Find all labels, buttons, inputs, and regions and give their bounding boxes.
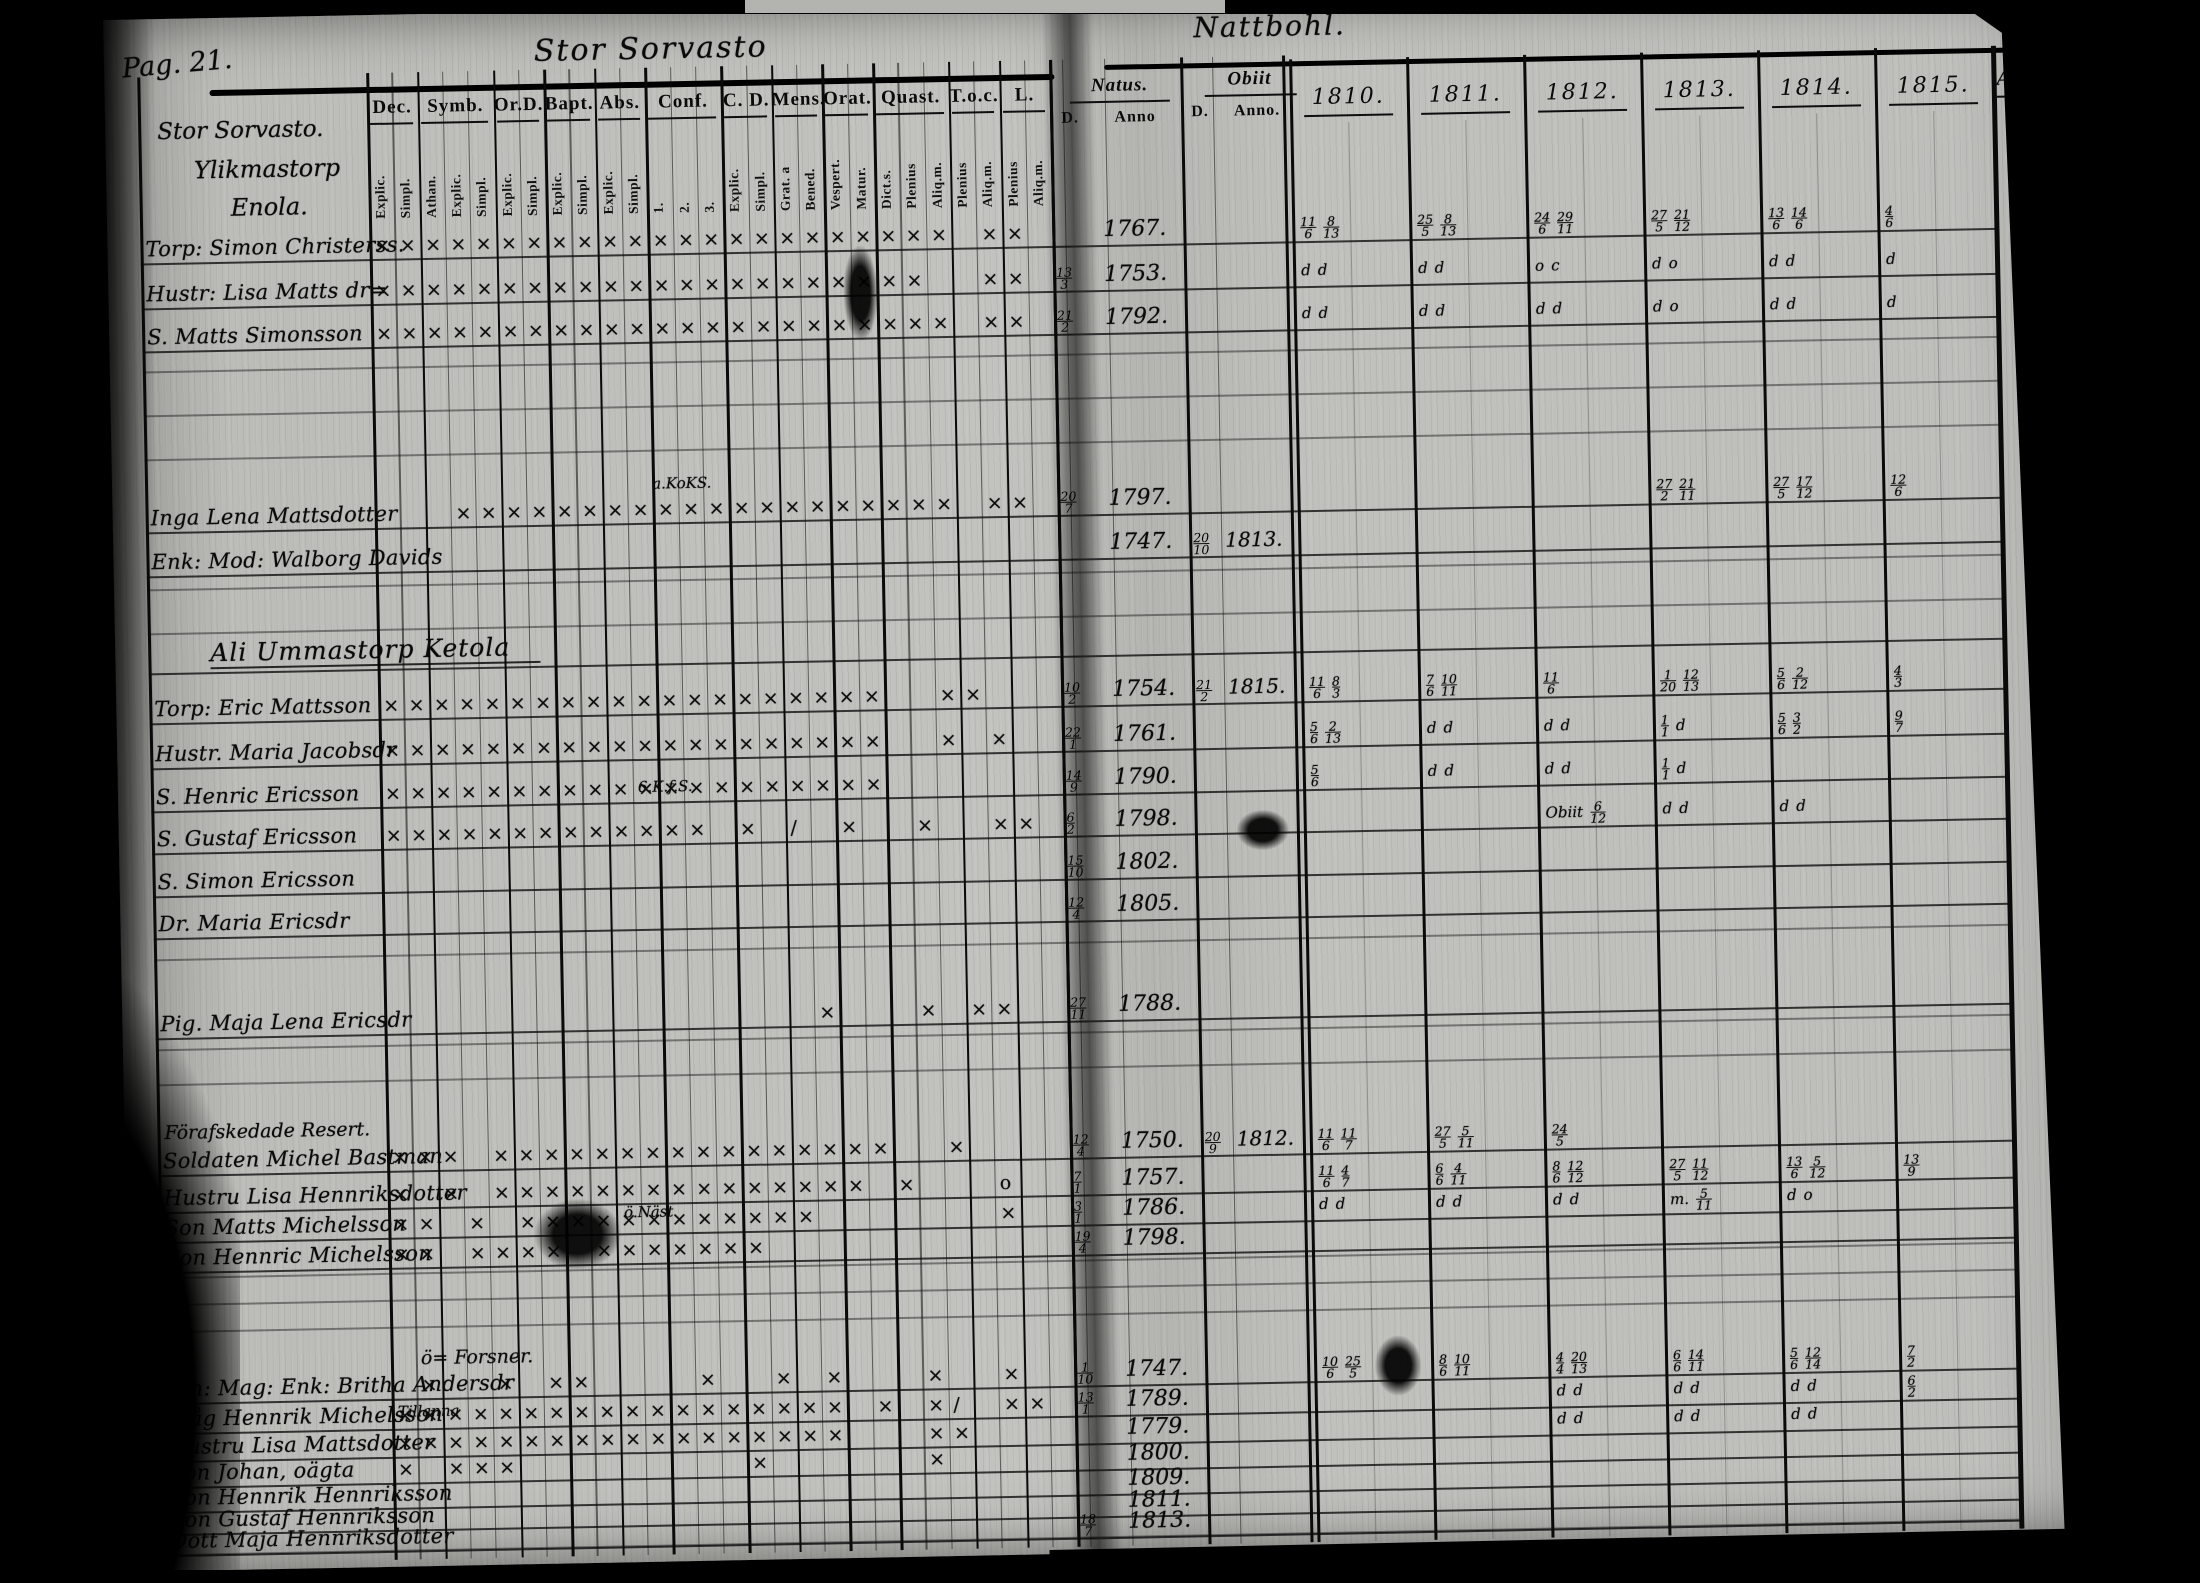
attendance-mark: ×	[443, 1183, 459, 1205]
attendance-mark: ×	[553, 319, 569, 341]
date-fraction: 1411	[1688, 1349, 1704, 1372]
year-cell: dd	[1536, 298, 1643, 318]
attendance-mark: ×	[502, 320, 518, 342]
year-cell: 136512	[1786, 1154, 1893, 1179]
attendance-mark: ×	[498, 1431, 514, 1453]
year-cell: dd	[1674, 1405, 1781, 1425]
attendance-mark: ×	[460, 738, 476, 760]
attendance-mark: ×	[486, 781, 502, 803]
year-cell: 442013	[1556, 1349, 1663, 1374]
column-subheader: Vespert.	[827, 122, 845, 210]
ditto-mark: d	[1419, 302, 1429, 320]
ditto-mark: d	[1787, 1186, 1797, 1204]
ditto-mark: d	[1560, 716, 1570, 734]
natus-year: 1802.	[1115, 849, 1178, 875]
attendance-mark: ×	[776, 1367, 792, 1389]
date-fraction: 56	[1778, 712, 1786, 735]
year-header-underline	[1304, 113, 1393, 117]
attendance-mark: ×	[751, 1398, 767, 1420]
attendance-mark: ×	[549, 1402, 565, 1424]
attendance-mark: ×	[549, 1430, 565, 1452]
attendance-mark: ×	[801, 1397, 817, 1419]
date-fraction: 245	[1552, 1123, 1568, 1146]
year-cell: dd	[1769, 250, 1876, 270]
year-cell: dd	[1790, 1375, 1897, 1395]
date-fraction: 11	[1662, 757, 1670, 780]
attendance-mark: ×	[728, 228, 744, 250]
attendance-mark: ×	[928, 1422, 944, 1444]
attendance-mark: ×	[1018, 812, 1034, 834]
attendance-mark: o	[1000, 1172, 1012, 1194]
attendance-mark: ×	[535, 692, 551, 714]
attendance-mark: ×	[948, 1136, 964, 1158]
row-name: Inga Lena Mattsdotter	[150, 502, 378, 530]
date-fraction: 72	[1907, 1345, 1915, 1368]
attendance-mark: ×	[499, 1457, 515, 1479]
attendance-mark: ×	[411, 824, 427, 846]
attendance-mark: ×	[860, 494, 876, 516]
ditto-mark: d	[1302, 304, 1312, 322]
year-cell: 11683	[1309, 674, 1416, 699]
column-subheader: Aliq.m.	[928, 120, 946, 208]
attendance-mark: ×	[797, 1176, 813, 1198]
ditto-mark: d	[1786, 295, 1796, 313]
attendance-mark: ×	[704, 273, 720, 295]
column-subheader: Plenius	[1004, 119, 1022, 207]
attendance-mark: ×	[680, 317, 696, 339]
attendance-mark: ×	[784, 496, 800, 518]
attendance-mark: ×	[435, 739, 451, 761]
year-cell: 62	[1907, 1373, 2014, 1398]
attendance-mark: ×	[452, 321, 468, 343]
column-subheader: Matur.	[852, 121, 870, 209]
attendance-mark: ×	[563, 821, 579, 843]
attendance-mark: ×	[940, 684, 956, 706]
attendance-mark: ×	[882, 313, 898, 335]
attendance-mark: ×	[461, 781, 477, 803]
attendance-mark: ×	[528, 320, 544, 342]
column-subheader: Simpl.	[397, 130, 415, 218]
column-subheader: Plenius	[902, 121, 920, 209]
year-cell: 116117	[1318, 1126, 1425, 1151]
attendance-mark: ×	[451, 278, 467, 300]
attendance-mark: ×	[755, 315, 771, 337]
attendance-mark: ×	[880, 225, 896, 247]
attendance-mark: ×	[481, 502, 497, 524]
attendance-mark: ×	[826, 1366, 842, 1388]
year-cell: 56213	[1310, 719, 1417, 744]
year-cell: 46	[1885, 203, 1992, 228]
attendance-mark: ×	[603, 275, 619, 297]
ditto-mark: d	[1552, 299, 1562, 317]
attendance-mark: ×	[548, 1372, 564, 1394]
attendance-mark: ×	[696, 1178, 712, 1200]
natus-year: 1800.	[1127, 1440, 1190, 1466]
attendance-mark: ×	[929, 1448, 945, 1470]
year-cell: d	[1886, 248, 1993, 268]
ink-blob	[1236, 810, 1289, 851]
date-fraction: 126	[1890, 474, 1906, 497]
attendance-mark: ×	[928, 1394, 944, 1416]
attendance-mark: ×	[536, 737, 552, 759]
attendance-mark: ×	[982, 268, 998, 290]
attendance-mark: ×	[560, 691, 576, 713]
attendance-mark: ×	[911, 493, 927, 515]
column-header-9: Quast.	[873, 86, 949, 109]
attendance-mark: ×	[418, 1213, 434, 1235]
attendance-mark: ×	[397, 1432, 413, 1454]
year-cell: 1201213	[1660, 667, 1767, 692]
column-subheader: Explic.	[447, 129, 465, 217]
column-subheader: Simpl.	[472, 129, 490, 217]
attendance-mark: ∕	[790, 817, 797, 839]
attendance-mark: ×	[981, 223, 997, 245]
attendance-mark: ×	[713, 733, 729, 755]
attendance-mark: ×	[739, 776, 755, 798]
date-fraction: 139	[1903, 1153, 1919, 1176]
attendance-mark: ×	[920, 999, 936, 1021]
attendance-mark: ×	[374, 235, 390, 257]
row-annotation: Tillanna	[398, 1402, 460, 1421]
attendance-mark: ×	[629, 318, 645, 340]
attendance-mark: ×	[600, 1429, 616, 1451]
attendance-mark: ×	[607, 499, 623, 521]
attendance-mark: ×	[510, 737, 526, 759]
date-fraction: 11	[1661, 714, 1669, 737]
year-cell: 97	[1895, 708, 2002, 733]
ditto-mark: d	[1435, 258, 1445, 276]
year-cell: 11647	[1318, 1163, 1425, 1188]
attendance-mark: ×	[773, 1206, 789, 1228]
natus-year: 1813.	[1128, 1508, 1191, 1534]
natus-year: 1797.	[1108, 485, 1171, 511]
date-fraction: 246	[1534, 211, 1550, 234]
year-col-vline	[1640, 53, 1671, 1536]
column-subheader: Bened.	[801, 122, 819, 210]
attendance-mark: ×	[1029, 1392, 1045, 1414]
date-fraction: 47	[1341, 1164, 1349, 1187]
year-cell: dd	[1418, 257, 1525, 277]
attendance-mark: ×	[385, 783, 401, 805]
attendance-mark: ×	[612, 735, 628, 757]
natus-year: 1754.	[1112, 676, 1175, 702]
attendance-mark: ×	[613, 820, 629, 842]
ink-blob	[843, 245, 879, 341]
date-fraction: 2112	[1674, 209, 1690, 232]
ditto-mark: d	[1691, 1407, 1701, 1425]
attendance-mark: ×	[991, 728, 1007, 750]
year-cell: 11d	[1662, 755, 1769, 780]
date-fraction: 411	[1450, 1162, 1466, 1185]
year-cell: 126	[1890, 472, 1997, 497]
date-fraction: 612	[1590, 800, 1606, 823]
ditto-mark: c	[1551, 256, 1560, 274]
attendance-mark: ×	[678, 229, 694, 251]
attendance-mark: ×	[512, 822, 528, 844]
attendance-mark: ×	[776, 1397, 792, 1419]
attendance-mark: ×	[577, 276, 593, 298]
film-shadow-bottom-left	[0, 980, 240, 1583]
attendance-mark: ×	[676, 1427, 692, 1449]
date-fraction: 275	[1651, 209, 1667, 232]
attendance-mark: ×	[780, 272, 796, 294]
attendance-mark: ×	[531, 501, 547, 523]
margin-place-name: Ylikmastorp	[194, 154, 341, 185]
row-annotation: 6.K.f.S.	[638, 777, 693, 796]
date-fraction: 1214	[1805, 1346, 1821, 1369]
attendance-mark: ×	[931, 224, 947, 246]
date-fraction: 66	[1673, 1349, 1681, 1372]
attendance-mark: ×	[748, 1237, 764, 1259]
attendance-mark: ×	[734, 497, 750, 519]
year-cell: Obiit612	[1545, 800, 1652, 825]
attendance-mark: ×	[708, 497, 724, 519]
attendance-mark: ×	[620, 1179, 636, 1201]
year-cell: 116813	[1300, 214, 1407, 239]
date-fraction: 1213	[1683, 669, 1699, 692]
ditto-mark: d	[1785, 252, 1795, 270]
attendance-mark: ×	[398, 1458, 414, 1480]
attendance-mark: ×	[612, 778, 628, 800]
attendance-mark: ×	[987, 492, 1003, 514]
ditto-mark: d	[1769, 252, 1779, 270]
date-fraction: 97	[1895, 710, 1903, 733]
attendance-mark: ×	[927, 1364, 943, 1386]
row-name: Hustr. Maria Jacobsdr	[155, 738, 383, 766]
ditto-mark: d	[1574, 1409, 1584, 1427]
attendance-mark: ×	[722, 1207, 738, 1229]
column-subheader: Explic.	[548, 127, 566, 215]
attendance-mark: ×	[650, 1428, 666, 1450]
attendance-mark: ×	[574, 1401, 590, 1423]
attendance-mark: ×	[473, 1431, 489, 1453]
date-fraction: 44	[1556, 1351, 1564, 1374]
attendance-mark: ×	[827, 1424, 843, 1446]
attendance-mark: ×	[1000, 1202, 1016, 1224]
ditto-mark: d	[1569, 1190, 1579, 1208]
year-cell: oc	[1535, 255, 1642, 275]
column-subheader: Explic.	[599, 126, 617, 214]
ditto-mark: m.	[1670, 1189, 1689, 1207]
column-header-underline	[876, 112, 944, 115]
attendance-mark: ×	[813, 686, 829, 708]
attendance-mark: ×	[1004, 1393, 1020, 1415]
column-subheader: Explic.	[725, 124, 743, 212]
ditto-mark: d	[1545, 759, 1555, 777]
row-name: S. Gustaf Ericsson	[157, 823, 385, 851]
attendance-mark: ×	[865, 730, 881, 752]
attendance-mark: ×	[701, 1427, 717, 1449]
ditto-mark: d	[1887, 293, 1897, 311]
attendance-mark: ×	[1007, 223, 1023, 245]
date-fraction: 255	[1345, 1355, 1361, 1378]
natus-year: 1753.	[1104, 261, 1167, 287]
attendance-mark: ×	[815, 774, 831, 796]
attendance-mark: ×	[393, 1213, 409, 1235]
attendance-mark: ×	[470, 1242, 486, 1264]
date-fraction: 212	[1792, 667, 1808, 690]
attendance-mark: ×	[790, 775, 806, 797]
attendance-mark: ×	[771, 1139, 787, 1161]
attendance-mark: ×	[476, 278, 492, 300]
attendance-mark: ×	[746, 1140, 762, 1162]
attendance-mark: ×	[841, 816, 857, 838]
attendance-mark: ×	[695, 1141, 711, 1163]
column-subheader: Simpl.	[624, 126, 642, 214]
year-cell: dd	[1779, 795, 1886, 815]
attendance-mark: ×	[561, 736, 577, 758]
attendance-mark: ×	[907, 312, 923, 334]
date-fraction: 275	[1669, 1158, 1685, 1181]
natus-year: 1792.	[1105, 304, 1168, 330]
year-cell: 56	[1311, 762, 1418, 787]
ditto-mark: d	[1319, 1195, 1329, 1213]
attendance-mark: ×	[448, 1431, 464, 1453]
attendance-mark: ×	[877, 1395, 893, 1417]
attendance-mark: ×	[672, 1238, 688, 1260]
ditto-mark: d	[1677, 758, 1687, 776]
ditto-mark: d	[1553, 1190, 1563, 1208]
attendance-mark: ×	[872, 1137, 888, 1159]
attendance-mark: ×	[965, 683, 981, 705]
attendance-mark: ×	[697, 1238, 713, 1260]
year-cell: dd	[1770, 293, 1877, 313]
ledger-spread: Pag. 21. Stor Sorvasto Nattbohl. Stor So…	[103, 0, 2122, 1572]
column-header-1: Symb.	[417, 95, 493, 118]
date-fraction: 1712	[1796, 475, 1812, 498]
attendance-mark: ×	[518, 1144, 534, 1166]
attendance-mark: ×	[664, 819, 680, 841]
attendance-mark: ×	[408, 694, 424, 716]
attendance-mark: ×	[599, 1401, 615, 1423]
attendance-mark: ×	[917, 814, 933, 836]
ditto-mark: d	[1444, 761, 1454, 779]
attendance-mark: ×	[400, 234, 416, 256]
attendance-mark: ×	[527, 277, 543, 299]
attendance-mark: ×	[714, 776, 730, 798]
column-subheader: Simpl.	[523, 128, 541, 216]
attendance-mark: ×	[759, 496, 775, 518]
date-fraction: 813	[1440, 213, 1456, 236]
attendance-mark: ×	[450, 233, 466, 255]
date-fraction: 76	[1426, 674, 1434, 697]
ditto-mark: o	[1535, 257, 1544, 275]
attendance-mark: ×	[632, 499, 648, 521]
attendance-mark: ×	[455, 502, 471, 524]
year-cell: do	[1787, 1184, 1894, 1204]
attendance-mark: ×	[781, 315, 797, 337]
date-fraction: 512	[1809, 1155, 1825, 1178]
attendance-mark: ×	[839, 731, 855, 753]
attendance-mark: ×	[621, 1239, 637, 1261]
obiit-year: 1815.	[1228, 674, 1286, 699]
attendance-mark: ×	[789, 732, 805, 754]
column-subheader: Athan.	[422, 130, 440, 218]
year-col-vline	[1523, 55, 1554, 1538]
column-subheader: 3.	[700, 124, 718, 212]
attendance-mark: ×	[459, 693, 475, 715]
attendance-mark: ×	[448, 1457, 464, 1479]
natus-year: 1805.	[1116, 891, 1179, 917]
date-fraction: 1011	[1441, 673, 1457, 696]
column-header-underline	[421, 121, 489, 124]
attendance-mark: ×	[730, 316, 746, 338]
attendance-mark: ×	[435, 782, 451, 804]
attendance-mark: ×	[427, 322, 443, 344]
year-header-1812: 1812.	[1524, 79, 1641, 106]
attendance-mark: ×	[675, 1399, 691, 1421]
attendance-mark: ×	[473, 1403, 489, 1425]
year-cell: 66411	[1435, 1161, 1542, 1186]
row-annotation: ö.Näst	[624, 1202, 674, 1221]
ditto-mark: o	[1669, 297, 1678, 315]
year-header-1813: 1813.	[1641, 76, 1758, 103]
attendance-mark: ×	[671, 1208, 687, 1230]
attendance-mark: ×	[993, 813, 1009, 835]
attendance-mark: ×	[410, 782, 426, 804]
attendance-mark: ×	[729, 273, 745, 295]
attendance-mark: ×	[971, 998, 987, 1020]
attendance-mark: ×	[827, 1396, 843, 1418]
attendance-mark: ×	[726, 1426, 742, 1448]
ditto-mark: d	[1318, 304, 1328, 322]
attendance-mark: ×	[637, 735, 653, 757]
attendance-mark: ×	[625, 1428, 641, 1450]
column-header-underline	[598, 118, 641, 121]
ditto-mark: d	[1573, 1381, 1583, 1399]
date-fraction: 1112	[1692, 1158, 1708, 1181]
year-cell: 245	[1552, 1121, 1659, 1146]
attendance-mark: ×	[755, 272, 771, 294]
year-col-vline	[1406, 57, 1437, 1540]
attendance-mark: ×	[864, 685, 880, 707]
attendance-mark: ×	[628, 275, 644, 297]
attendance-mark: ×	[740, 818, 756, 840]
date-fraction: 116	[1309, 676, 1325, 699]
attendance-mark: ×	[881, 270, 897, 292]
attendance-mark: ×	[506, 501, 522, 523]
natus-year: 1747.	[1125, 1356, 1188, 1382]
attendance-mark: ×	[855, 225, 871, 247]
attendance-mark: ×	[578, 319, 594, 341]
column-subheader: Grat. a	[776, 123, 794, 211]
attendance-mark: ×	[573, 1371, 589, 1393]
attendance-mark: ×	[624, 1400, 640, 1422]
year-col-vline	[1289, 59, 1320, 1542]
attendance-mark: ×	[763, 687, 779, 709]
date-fraction: 46	[1885, 205, 1893, 228]
year-cell: 139	[1903, 1152, 2010, 1177]
year-header-underline	[1655, 107, 1744, 111]
attendance-mark: ×	[689, 819, 705, 841]
natus-year: 1786.	[1122, 1195, 1185, 1221]
attendance-mark: ×	[683, 498, 699, 520]
attendance-mark: ×	[823, 1175, 839, 1197]
year-cell: 56212	[1777, 665, 1884, 690]
natus-year: 1767.	[1103, 216, 1166, 242]
ditto-mark: d	[1807, 1376, 1817, 1394]
date-fraction: 2911	[1557, 211, 1573, 234]
row-name: Dr. Maria Ericsdr	[158, 908, 386, 936]
year-cell: dd	[1319, 1193, 1426, 1213]
natus-year: 1789.	[1126, 1386, 1189, 1412]
attendance-mark: ×	[763, 732, 779, 754]
year-cell: dd	[1557, 1379, 1664, 1399]
attendance-mark: ×	[392, 1183, 408, 1205]
margin-place-name: Stor Sorvasto.	[157, 116, 324, 145]
attendance-mark: ×	[653, 229, 669, 251]
year-header-1815: 1815.	[1874, 72, 1991, 99]
